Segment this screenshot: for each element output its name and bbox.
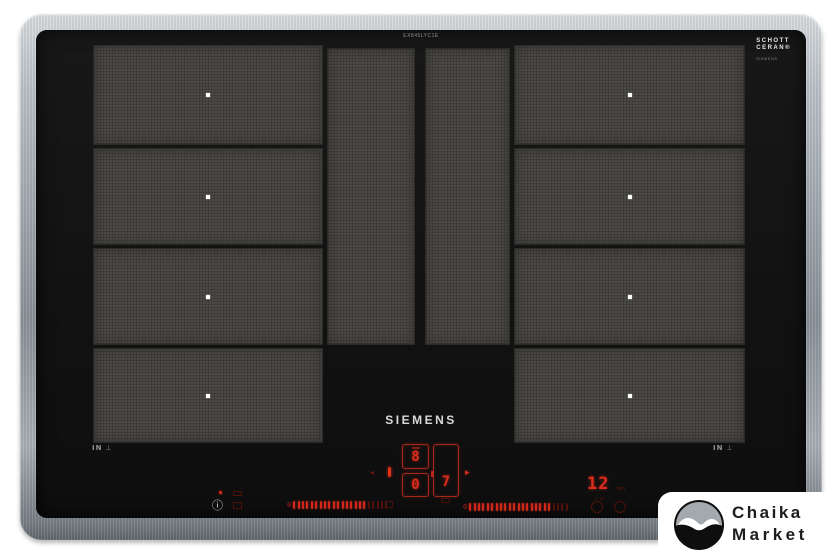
timer-button-icon xyxy=(591,501,603,513)
pan-indicator-icon xyxy=(412,447,420,449)
cooking-zone xyxy=(514,45,745,145)
glass-surface: EX845LYC1E SCHOTT CERAN® SIEMENS IN⊥ IN⊥… xyxy=(36,30,806,518)
cooking-zone xyxy=(93,45,323,145)
arrow-right-icon: ▸ xyxy=(465,468,470,478)
zone-center-dot xyxy=(206,93,210,97)
watermark-text: Chaika Market xyxy=(732,502,808,546)
cooking-zone xyxy=(514,248,745,345)
cooking-zone xyxy=(514,348,745,443)
zone-power-display: 7 xyxy=(433,444,459,497)
zone-power-display: 0 xyxy=(402,473,429,497)
watermark-line1: Chaika xyxy=(732,502,808,524)
cooking-zone xyxy=(93,248,323,345)
power-digit: 8 xyxy=(411,449,419,465)
indicator-icon xyxy=(233,491,242,496)
seagull-logo-icon xyxy=(674,500,724,550)
slider-ticks xyxy=(293,496,390,514)
right-power-slider: 0 xyxy=(463,502,570,512)
cooking-zone xyxy=(93,148,323,245)
induction-marking-right: IN⊥ xyxy=(713,444,734,452)
left-power-slider: 0 xyxy=(287,500,390,510)
selection-marker xyxy=(388,467,391,477)
timer-display: 12 xyxy=(587,474,609,494)
slider-ticks xyxy=(469,498,570,516)
watermark-card: Chaika Market xyxy=(658,492,840,559)
cooking-zone-vertical xyxy=(327,48,415,345)
power-digit: 0 xyxy=(411,477,419,493)
cooktop-frame: EX845LYC1E SCHOTT CERAN® SIEMENS IN⊥ IN⊥… xyxy=(20,14,822,540)
power-digit: 7 xyxy=(442,474,450,490)
indicator-icon xyxy=(233,502,242,509)
product-photo: EX845LYC1E SCHOTT CERAN® SIEMENS IN⊥ IN⊥… xyxy=(0,0,840,559)
pan-symbol-icon: ⊥ xyxy=(105,444,112,452)
slider-zero-label: 0 xyxy=(463,503,467,511)
zone-center-dot xyxy=(628,394,632,398)
info-icon: ⓘ xyxy=(212,497,223,513)
zone-center-dot xyxy=(628,93,632,97)
zone-center-dot xyxy=(206,195,210,199)
zone-power-display: 8 xyxy=(402,444,429,469)
zone-center-dot xyxy=(628,295,632,299)
schott-line2: CERAN® xyxy=(756,45,791,52)
right-zone-block xyxy=(514,30,745,518)
schott-sub: SIEMENS xyxy=(756,56,791,63)
slider-zero-label: 0 xyxy=(287,501,291,509)
pan-symbol-icon: ⊥ xyxy=(726,444,733,452)
chevron-left-icon: ◂ xyxy=(370,468,374,477)
left-zone-block xyxy=(93,30,323,518)
power-status-led xyxy=(219,491,222,494)
lock-indicator-icon xyxy=(441,498,450,503)
cooking-zone-vertical xyxy=(425,48,510,345)
brand-logo: SIEMENS xyxy=(36,413,806,427)
zone-center-dot xyxy=(206,394,210,398)
zone-center-dot xyxy=(206,295,210,299)
watermark-line2: Market xyxy=(732,524,808,546)
zone-center-dot xyxy=(628,195,632,199)
cooking-zone xyxy=(514,148,745,245)
timer-unit-label: min xyxy=(617,486,625,492)
cooking-zone xyxy=(93,348,323,443)
clock-button-icon xyxy=(614,501,626,513)
induction-marking-left: IN⊥ xyxy=(92,444,113,452)
schott-line1: SCHOTT xyxy=(756,38,791,45)
settings-indicator-icon xyxy=(385,501,393,508)
display-notch xyxy=(431,471,433,477)
schott-ceran-label: SCHOTT CERAN® SIEMENS xyxy=(756,38,791,63)
